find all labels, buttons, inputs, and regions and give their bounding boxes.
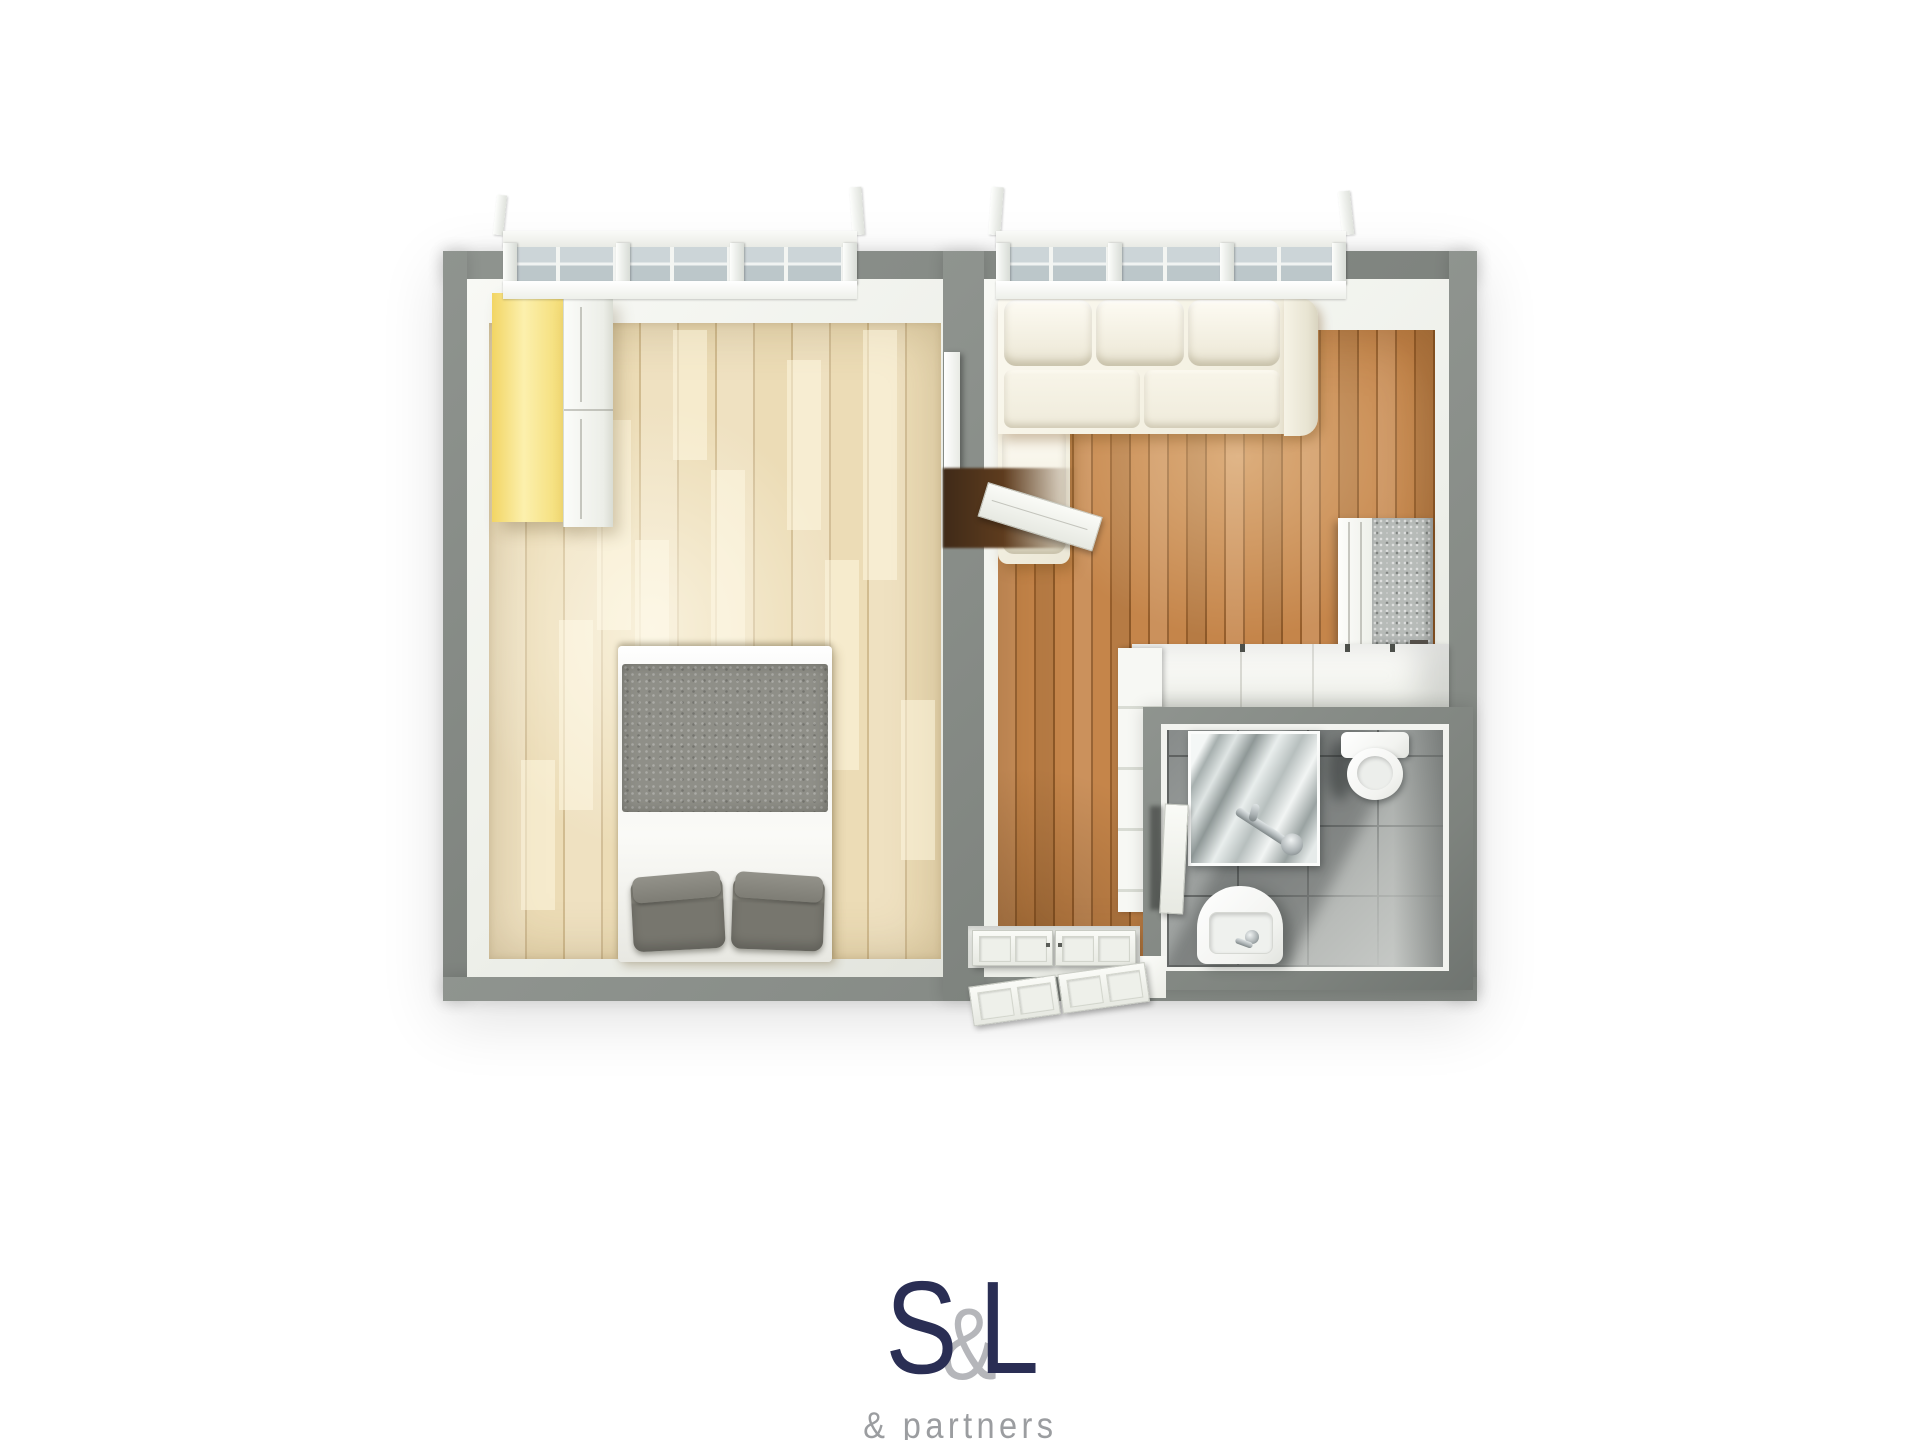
door-panel <box>979 936 1011 962</box>
window-fin <box>988 187 1003 236</box>
window-sill-outer <box>503 231 857 247</box>
window-sill-inner <box>996 281 1346 299</box>
window-post <box>1332 243 1346 285</box>
counter-hinge <box>1345 644 1350 652</box>
wardrobe-door-seam <box>564 409 613 411</box>
logo-tagline: & partners <box>863 1405 1057 1440</box>
wardrobe-yellow-top <box>492 293 563 522</box>
window-post <box>1108 243 1122 285</box>
toilet-bowl-inner <box>1357 756 1393 790</box>
window-post <box>996 243 1010 285</box>
window-glass <box>996 247 1346 281</box>
appliance-seam <box>1360 522 1362 644</box>
sink-basin <box>1209 912 1273 954</box>
door-panel <box>1062 936 1094 962</box>
counter-seam <box>1312 644 1314 708</box>
logo-letter-l: L <box>979 1254 1034 1401</box>
bed-pillow-left <box>630 876 726 953</box>
counter-hinge <box>1390 644 1395 652</box>
sofa-arm <box>1284 298 1318 436</box>
door-panel <box>1015 936 1047 962</box>
window-sill-outer <box>996 231 1346 247</box>
wall-left <box>443 251 467 1001</box>
entry-door-leaf-open <box>968 974 1061 1026</box>
door-panel <box>1098 936 1130 962</box>
window-post <box>730 243 744 285</box>
wardrobe-white-doors <box>563 299 613 527</box>
bedroom-window <box>503 231 857 299</box>
door-panel <box>1017 982 1055 1014</box>
shower-fixture-set <box>1227 795 1309 865</box>
logo-letter-s: S <box>886 1254 953 1401</box>
bed-pillow-right <box>731 876 825 951</box>
wardrobe-door-seam <box>580 419 582 519</box>
company-logo: S&L & partners <box>0 1262 1920 1440</box>
logo-wordmark: S&L <box>886 1262 1035 1395</box>
counter-seam <box>1240 644 1242 708</box>
sofa-back-cushion <box>1188 300 1280 366</box>
counter-hinge <box>1240 644 1245 652</box>
pillow-flap <box>734 871 824 903</box>
door-handle <box>1058 943 1062 947</box>
window-post <box>1220 243 1234 285</box>
living-window <box>996 231 1346 299</box>
sofa-back-cushion <box>1096 300 1184 366</box>
window-post <box>616 243 630 285</box>
door-panel <box>1066 975 1104 1007</box>
entry-doors-inner <box>972 928 1136 966</box>
window-fin <box>849 187 864 236</box>
appliance-cabinet <box>1338 518 1433 648</box>
bed-duvet <box>622 664 828 812</box>
sofa-top-run <box>998 296 1284 434</box>
window-sill-inner <box>503 281 857 299</box>
door-panel <box>1106 970 1144 1002</box>
tv-panel <box>944 352 960 470</box>
pedestal-sink <box>1197 886 1283 964</box>
floor-plan-canvas: S&L & partners <box>0 0 1920 1440</box>
sofa-back-cushion <box>1004 300 1092 366</box>
entry-door-leaf-open <box>1057 962 1150 1014</box>
window-fin <box>493 195 507 236</box>
shower-glass <box>1188 731 1320 866</box>
window-post <box>843 243 857 285</box>
door-handle <box>1046 943 1050 947</box>
window-fin <box>1338 190 1355 235</box>
appliance-top <box>1372 518 1433 648</box>
appliance-doors <box>1338 518 1373 648</box>
window-post <box>503 243 517 285</box>
appliance-seam <box>1348 522 1350 644</box>
door-panel <box>977 988 1015 1020</box>
entry-door-leaf <box>972 930 1053 966</box>
sofa-seat-cushion <box>1144 370 1280 428</box>
toilet-bowl <box>1347 748 1403 800</box>
window-glass <box>503 247 857 281</box>
wardrobe-door-seam <box>580 307 582 402</box>
sofa-seat-cushion <box>1004 370 1140 428</box>
kitchen-counter <box>1132 644 1449 708</box>
